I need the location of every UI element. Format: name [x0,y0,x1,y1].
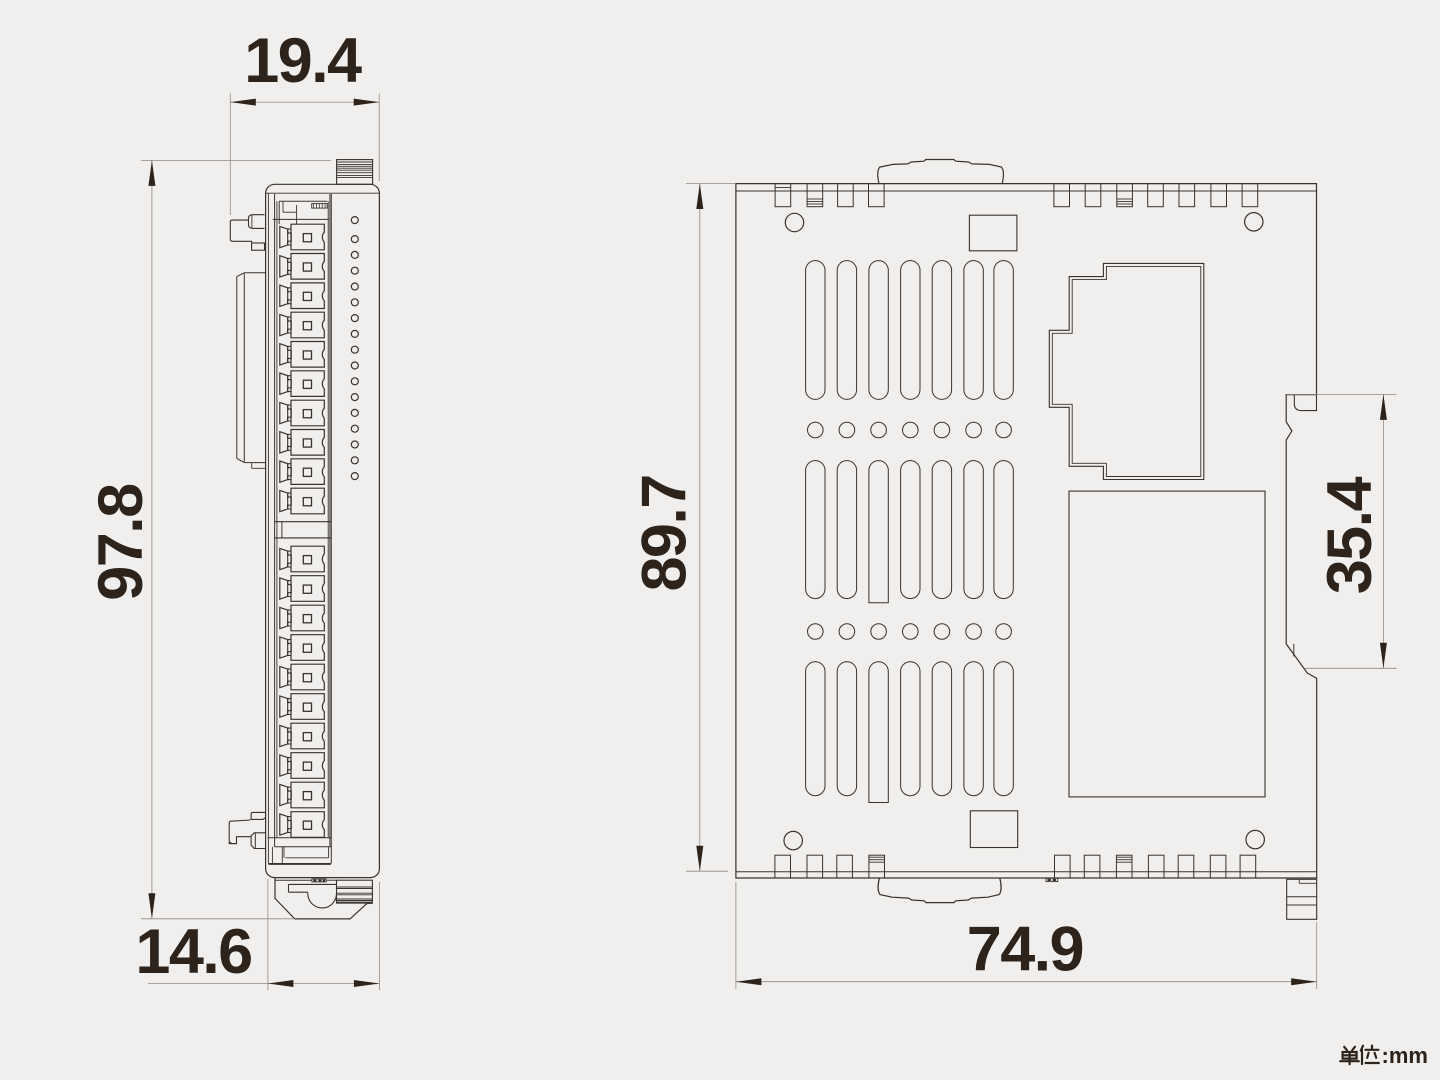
svg-text::mm: :mm [1382,1043,1428,1068]
svg-text:89.7: 89.7 [629,475,699,591]
svg-text:97.8: 97.8 [86,484,156,601]
svg-text:14.6: 14.6 [135,917,251,987]
svg-text:74.9: 74.9 [967,914,1083,984]
svg-text:35.4: 35.4 [1315,477,1385,595]
svg-text:19.4: 19.4 [244,26,362,96]
